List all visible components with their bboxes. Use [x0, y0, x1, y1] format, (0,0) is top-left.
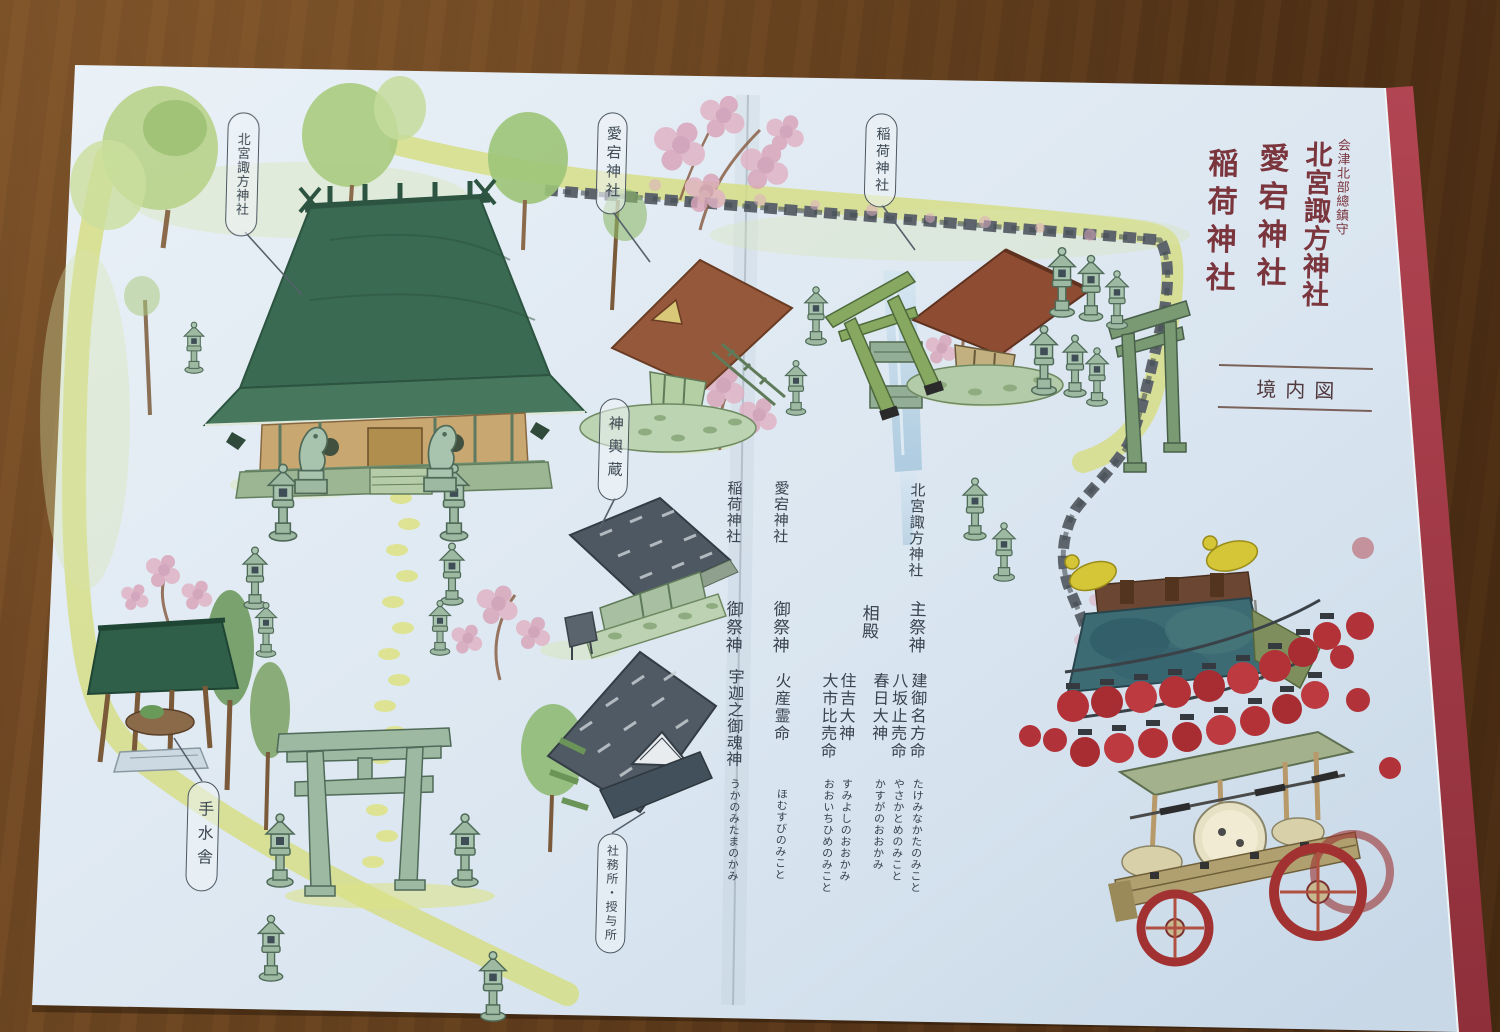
deity-atago-role: 御祭神	[770, 600, 789, 654]
deity-kana: ほむすびのみこと	[773, 788, 787, 880]
map-label-temizuya: 手水舎	[185, 781, 220, 892]
map-label-shrine-office: 社務所・授与所	[595, 833, 628, 954]
stone-lantern-box	[565, 612, 597, 647]
cover-title-primary: 北宮諏方神社	[1299, 140, 1330, 309]
cover-title-secondary: 愛宕神社	[1252, 142, 1286, 295]
deity-inari-role: 御祭神	[723, 600, 742, 654]
deity-inari-shrine-name: 稲荷神社	[723, 480, 740, 544]
deity-main-shrine-name: 北宮諏方神社	[905, 482, 923, 578]
deity-name: 住吉大神	[835, 672, 854, 742]
deity-kana: かすがのおおかみ	[871, 778, 885, 870]
deity-kana: おおいちひめのみこと	[819, 778, 834, 893]
deity-kana: すみよしのおおかみ	[837, 778, 851, 882]
deity-name: 宇迦之御魂神	[722, 668, 741, 767]
deity-kana: たけみなかたのみこと	[908, 778, 923, 893]
deity-main-role-primary: 主祭神	[906, 600, 925, 654]
deity-name: 八坂止売命	[887, 672, 906, 760]
map-label-mikoshi-storehouse: 神輿蔵	[597, 398, 630, 501]
map-label-atago: 愛宕神社	[595, 112, 628, 215]
photo-of-shrine-map-pamphlet: 会津北部總鎮守 北宮諏方神社 愛宕神社 稲荷神社 境内図 北宮諏方神社 愛宕神社…	[0, 0, 1500, 1032]
map-caption-box: 境内図	[1218, 364, 1373, 412]
map-label-inari: 稲荷神社	[864, 113, 898, 208]
deity-main-role-co: 相殿	[859, 604, 878, 640]
deity-atago-shrine-name: 愛宕神社	[770, 480, 787, 544]
cover-title-tertiary: 稲荷神社	[1201, 147, 1235, 300]
deity-name: 建御名方命	[906, 672, 925, 760]
deity-kana: やさかとめのみこと	[889, 778, 903, 882]
deity-name: 春日大神	[868, 672, 887, 742]
cover-dedication: 会津北部總鎮守	[1334, 138, 1350, 236]
map-label-main-shrine: 北宮諏方神社	[225, 112, 260, 237]
map-caption: 境内図	[1247, 372, 1344, 404]
deity-kana: うかのみたまのかみ	[725, 778, 739, 882]
deity-name: 火産霊命	[770, 672, 789, 742]
deity-name: 大市比売命	[817, 672, 836, 760]
